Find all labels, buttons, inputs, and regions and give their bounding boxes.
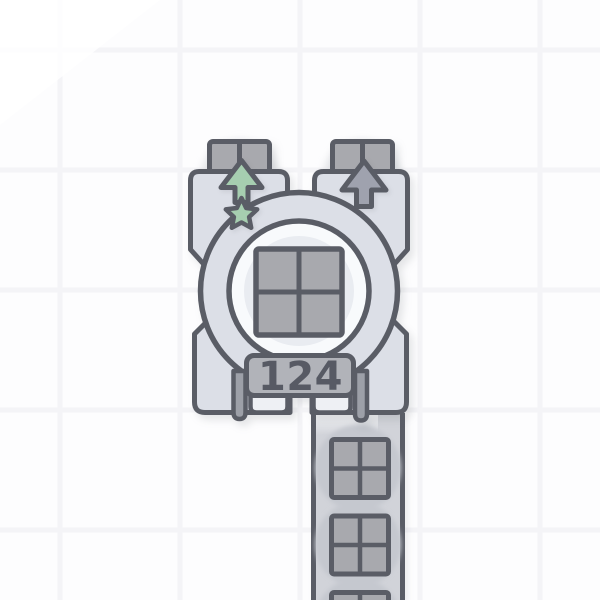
conveyor-track[interactable] bbox=[311, 411, 405, 600]
crate bbox=[329, 437, 391, 500]
plate-number: 124 bbox=[258, 354, 343, 400]
number-plate: 124 bbox=[247, 354, 354, 400]
game-viewport: 124 bbox=[0, 0, 600, 600]
crate bbox=[329, 590, 391, 600]
tower-post-right bbox=[355, 371, 367, 421]
crate-window bbox=[254, 247, 345, 338]
tower-post-left bbox=[234, 371, 246, 419]
crate bbox=[329, 514, 391, 577]
game-scene: 124 bbox=[0, 0, 600, 600]
